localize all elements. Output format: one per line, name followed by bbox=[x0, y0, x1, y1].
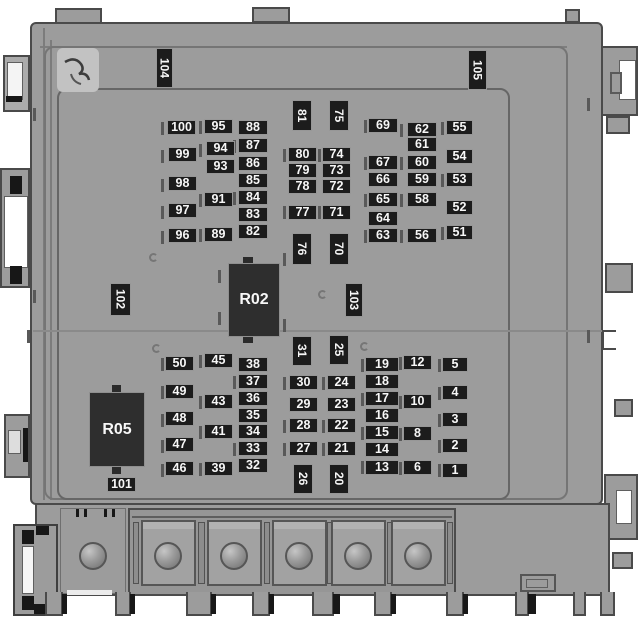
fuse-label-60: 60 bbox=[407, 155, 437, 170]
fuse-label-19: 19 bbox=[365, 357, 399, 372]
fuse-label-18: 18 bbox=[365, 374, 399, 389]
mounting-foot bbox=[446, 592, 464, 616]
fuse-slot-tick bbox=[161, 464, 164, 477]
fuse-label-93: 93 bbox=[206, 159, 235, 174]
fuse-slot-tick bbox=[199, 144, 202, 157]
fuse-slot-tick bbox=[161, 206, 164, 219]
molding-mark bbox=[360, 342, 369, 351]
fuse-slot-tick bbox=[233, 443, 236, 456]
fuse-label-38: 38 bbox=[238, 357, 268, 372]
fuse-label-14: 14 bbox=[365, 442, 399, 457]
mounting-hole bbox=[154, 542, 182, 570]
mounting-hole bbox=[79, 542, 107, 570]
molding-mark bbox=[318, 290, 327, 299]
foot-gap-shadow bbox=[269, 594, 274, 614]
mounting-foot bbox=[312, 592, 334, 616]
fuse-slot-tick bbox=[322, 377, 325, 390]
fuse-slot-tick bbox=[364, 194, 367, 207]
mounting-hole bbox=[285, 542, 313, 570]
fuse-label-94: 94 bbox=[206, 141, 235, 156]
fuse-slot-tick bbox=[364, 230, 367, 243]
fuse-label-31: 31 bbox=[292, 336, 312, 366]
fuse-label-72: 72 bbox=[322, 179, 351, 194]
fuse-label-36: 36 bbox=[238, 391, 268, 406]
fuse-slot-tick bbox=[161, 414, 164, 427]
fuse-label-79: 79 bbox=[288, 163, 317, 178]
fuse-label-75: 75 bbox=[329, 100, 349, 131]
fuse-label-70: 70 bbox=[329, 233, 349, 265]
fuse-slot-tick bbox=[399, 357, 402, 370]
fuse-slot-tick bbox=[218, 270, 221, 283]
fuse-slot-tick bbox=[441, 227, 444, 240]
fuse-label-105: 105 bbox=[468, 50, 487, 90]
mounting-foot bbox=[515, 592, 529, 616]
fuse-slot-tick bbox=[218, 312, 221, 325]
fuse-label-26: 26 bbox=[293, 464, 313, 494]
fuse-slot-tick bbox=[199, 194, 202, 207]
fuse-label-61: 61 bbox=[407, 137, 437, 152]
mounting-foot bbox=[252, 592, 270, 616]
fuse-label-100: 100 bbox=[167, 120, 196, 135]
fuse-label-104: 104 bbox=[156, 48, 173, 88]
fuse-label-101: 101 bbox=[107, 477, 136, 492]
fuse-label-71: 71 bbox=[322, 205, 351, 220]
fuse-slot-tick bbox=[283, 253, 286, 266]
fuse-label-48: 48 bbox=[165, 411, 194, 426]
fuse-label-98: 98 bbox=[168, 176, 197, 191]
fuse-slot-tick bbox=[587, 98, 590, 111]
fuse-label-82: 82 bbox=[238, 224, 268, 239]
fuse-label-97: 97 bbox=[168, 203, 197, 218]
fuse-label-63: 63 bbox=[368, 228, 398, 243]
fuse-slot-tick bbox=[400, 157, 403, 170]
relay-label-R02: R02 bbox=[228, 263, 280, 337]
fuse-slot-tick bbox=[399, 428, 402, 441]
fuse-slot-tick bbox=[399, 396, 402, 409]
fuse-slot-tick bbox=[400, 124, 403, 137]
fuse-slot-tick bbox=[199, 121, 202, 134]
fuse-label-35: 35 bbox=[238, 408, 268, 423]
fuse-slot-tick bbox=[233, 192, 236, 205]
foot-gap-shadow bbox=[391, 594, 396, 614]
fuse-slot-tick bbox=[199, 396, 202, 409]
fuse-slot-tick bbox=[441, 122, 444, 135]
fuse-slot-tick bbox=[283, 149, 286, 162]
fuse-label-73: 73 bbox=[322, 163, 351, 178]
fuse-label-59: 59 bbox=[407, 172, 437, 187]
fuse-label-95: 95 bbox=[204, 119, 233, 134]
fuse-label-24: 24 bbox=[327, 375, 356, 390]
fuse-label-39: 39 bbox=[204, 461, 233, 476]
fuse-label-15: 15 bbox=[365, 425, 399, 440]
fuse-slot-tick bbox=[587, 330, 590, 343]
mounting-hole bbox=[220, 542, 248, 570]
fuse-label-80: 80 bbox=[288, 147, 317, 162]
fuse-label-16: 16 bbox=[365, 408, 399, 423]
fuse-slot-tick bbox=[318, 206, 321, 219]
fuse-box-diagram: 1009998979695949391898887868584838280797… bbox=[0, 0, 640, 621]
fuse-label-58: 58 bbox=[407, 192, 437, 207]
fuse-slot-tick bbox=[161, 179, 164, 192]
fuse-label-96: 96 bbox=[168, 228, 197, 243]
fuse-label-46: 46 bbox=[165, 461, 194, 476]
mounting-foot bbox=[573, 592, 586, 616]
fuse-label-23: 23 bbox=[327, 397, 356, 412]
fuse-slot-tick bbox=[318, 149, 321, 162]
fuse-label-13: 13 bbox=[365, 460, 399, 475]
fuse-label-29: 29 bbox=[289, 397, 318, 412]
fuse-slot-tick bbox=[438, 387, 441, 400]
fuse-label-88: 88 bbox=[238, 120, 268, 135]
fuse-label-21: 21 bbox=[327, 441, 356, 456]
fuse-label-17: 17 bbox=[365, 391, 399, 406]
fuse-slot-tick bbox=[199, 355, 202, 368]
fuse-label-56: 56 bbox=[407, 228, 437, 243]
fuse-label-32: 32 bbox=[238, 458, 268, 473]
fuse-label-41: 41 bbox=[204, 424, 233, 439]
fuse-label-89: 89 bbox=[204, 227, 233, 242]
fuse-label-22: 22 bbox=[327, 418, 356, 433]
fuse-label-83: 83 bbox=[238, 207, 268, 222]
mounting-foot bbox=[600, 592, 615, 616]
fuse-label-1: 1 bbox=[442, 463, 468, 478]
fuse-slot-tick bbox=[438, 414, 441, 427]
fuse-label-62: 62 bbox=[407, 122, 437, 137]
fuse-label-78: 78 bbox=[288, 179, 317, 194]
molding-mark bbox=[149, 253, 158, 262]
fuse-label-45: 45 bbox=[204, 353, 233, 368]
fuse-label-47: 47 bbox=[165, 437, 194, 452]
fuse-label-12: 12 bbox=[403, 355, 432, 370]
fuse-label-53: 53 bbox=[446, 172, 473, 187]
fuse-label-33: 33 bbox=[238, 441, 268, 456]
fuse-label-69: 69 bbox=[368, 118, 398, 133]
fuse-label-74: 74 bbox=[322, 147, 351, 162]
fuse-label-4: 4 bbox=[442, 385, 468, 400]
fuse-label-6: 6 bbox=[403, 460, 432, 475]
fuse-label-2: 2 bbox=[442, 438, 468, 453]
label-layer: 1009998979695949391898887868584838280797… bbox=[0, 0, 640, 621]
fuse-label-76: 76 bbox=[292, 233, 312, 265]
fuse-label-102: 102 bbox=[110, 283, 131, 316]
fuse-label-65: 65 bbox=[368, 192, 398, 207]
mounting-foot bbox=[374, 592, 392, 616]
fuse-label-54: 54 bbox=[446, 149, 473, 164]
fuse-label-25: 25 bbox=[329, 335, 349, 365]
fuse-slot-tick bbox=[322, 443, 325, 456]
fuse-slot-tick bbox=[283, 443, 286, 456]
fuse-slot-tick bbox=[438, 464, 441, 477]
fuse-label-10: 10 bbox=[403, 394, 432, 409]
fuse-label-66: 66 bbox=[368, 172, 398, 187]
fuse-label-103: 103 bbox=[345, 283, 363, 317]
fuse-slot-tick bbox=[161, 150, 164, 163]
fuse-slot-tick bbox=[364, 120, 367, 133]
fuse-slot-tick bbox=[283, 420, 286, 433]
fuse-label-3: 3 bbox=[442, 412, 468, 427]
mounting-foot bbox=[186, 592, 212, 616]
fuse-label-67: 67 bbox=[368, 155, 398, 170]
fuse-slot-tick bbox=[27, 330, 30, 343]
fuse-slot-tick bbox=[361, 393, 364, 406]
fuse-label-43: 43 bbox=[204, 394, 233, 409]
fuse-slot-tick bbox=[33, 290, 36, 303]
fuse-slot-tick bbox=[438, 440, 441, 453]
fuse-label-84: 84 bbox=[238, 190, 268, 205]
fuse-label-52: 52 bbox=[446, 200, 473, 215]
relay-label-R05: R05 bbox=[89, 392, 145, 467]
fuse-label-51: 51 bbox=[446, 225, 473, 240]
fuse-slot-tick bbox=[441, 174, 444, 187]
fuse-slot-tick bbox=[233, 376, 236, 389]
foot-gap-shadow bbox=[211, 594, 216, 614]
fuse-label-86: 86 bbox=[238, 156, 268, 171]
fuse-label-99: 99 bbox=[168, 147, 197, 162]
fuse-slot-tick bbox=[400, 194, 403, 207]
fuse-slot-tick bbox=[361, 427, 364, 440]
fuse-label-34: 34 bbox=[238, 424, 268, 439]
fuse-slot-tick bbox=[283, 377, 286, 390]
fuse-slot-tick bbox=[199, 229, 202, 242]
fuse-label-37: 37 bbox=[238, 374, 268, 389]
fuse-label-28: 28 bbox=[289, 418, 318, 433]
mounting-foot bbox=[115, 592, 131, 616]
fuse-label-81: 81 bbox=[292, 100, 312, 131]
mounting-hole bbox=[344, 542, 372, 570]
fuse-slot-tick bbox=[199, 426, 202, 439]
foot-gap-shadow bbox=[528, 594, 536, 614]
fuse-label-20: 20 bbox=[329, 464, 349, 494]
fuse-label-64: 64 bbox=[368, 211, 398, 226]
fuse-slot-tick bbox=[161, 386, 164, 399]
foot-gap-shadow bbox=[130, 594, 135, 614]
fuse-slot-tick bbox=[161, 440, 164, 453]
fuse-slot-tick bbox=[283, 206, 286, 219]
fuse-label-77: 77 bbox=[288, 205, 317, 220]
fuse-label-50: 50 bbox=[165, 356, 194, 371]
fuse-label-30: 30 bbox=[289, 375, 318, 390]
fuse-slot-tick bbox=[361, 461, 364, 474]
foot-gap-shadow bbox=[62, 594, 67, 614]
fuse-label-49: 49 bbox=[165, 384, 194, 399]
fuse-slot-tick bbox=[364, 157, 367, 170]
fuse-label-87: 87 bbox=[238, 138, 268, 153]
fuse-slot-tick bbox=[322, 420, 325, 433]
fuse-label-91: 91 bbox=[204, 192, 233, 207]
fuse-slot-tick bbox=[400, 230, 403, 243]
fuse-slot-tick bbox=[399, 462, 402, 475]
fuse-slot-tick bbox=[161, 231, 164, 244]
fuse-label-5: 5 bbox=[442, 357, 468, 372]
fuse-slot-tick bbox=[438, 359, 441, 372]
mounting-foot bbox=[45, 592, 63, 616]
molding-mark bbox=[152, 344, 161, 353]
foot-gap-shadow bbox=[333, 594, 340, 614]
mounting-hole bbox=[404, 542, 432, 570]
fuse-label-8: 8 bbox=[403, 426, 432, 441]
fuse-slot-tick bbox=[283, 319, 286, 332]
fuse-slot-tick bbox=[199, 463, 202, 476]
foot-gap-shadow bbox=[463, 594, 468, 614]
fuse-label-27: 27 bbox=[289, 441, 318, 456]
fuse-slot-tick bbox=[361, 359, 364, 372]
fuse-slot-tick bbox=[161, 358, 164, 371]
fuse-label-85: 85 bbox=[238, 173, 268, 188]
fuse-slot-tick bbox=[161, 122, 164, 135]
fuse-label-55: 55 bbox=[446, 120, 473, 135]
fuse-slot-tick bbox=[33, 108, 36, 121]
